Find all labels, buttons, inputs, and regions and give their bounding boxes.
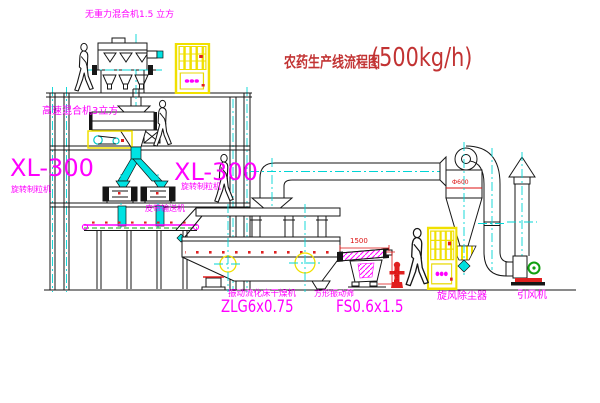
dimension-sieve-length: 1500 [350, 238, 368, 245]
label-sieve-model: FS0.6x1.5 [336, 299, 404, 316]
diagram-title-capacity: (500kg/h) [371, 45, 472, 71]
exhaust-duct [250, 158, 448, 214]
label-fan: 引风机 [517, 291, 547, 301]
dimension-cyclone-diameter: Ф600 [452, 180, 469, 186]
person-figure [75, 43, 93, 91]
label-granulator-right-model: XL-300 [174, 160, 258, 184]
draft-fan [506, 256, 545, 286]
label-gravity-mixer: 无重力混合机1.5 立方 [85, 11, 174, 20]
fluid-bed-dryer [176, 204, 340, 292]
control-cabinet-bottom [428, 228, 456, 289]
process-flow-diagram: 农药生产线流程图 (500kg/h) 无重力混合机1.5 立方 高速混合机3立方… [0, 0, 600, 403]
label-high-speed-mixer: 高速混合机3立方 [42, 107, 118, 117]
label-dryer-model: ZLG6x0.75 [221, 299, 294, 316]
diagram-title: 农药生产线流程图 [284, 55, 380, 70]
person-figure [406, 228, 428, 285]
label-granulator-left-model: XL-300 [10, 156, 94, 180]
vibrating-sieve [337, 245, 395, 287]
label-cyclone: 旋风除尘器 [437, 292, 487, 302]
label-belt-conveyor: 皮带输送机 [145, 205, 185, 213]
label-granulator-left-name: 旋转制粒机 [11, 186, 51, 194]
control-cabinet-top [176, 44, 209, 93]
belt-conveyor [82, 222, 198, 290]
dimension-sieve-height: 545 [394, 270, 401, 283]
high-speed-mixer [88, 97, 160, 148]
label-granulator-right-name: 旋转制粒机 [181, 183, 221, 191]
